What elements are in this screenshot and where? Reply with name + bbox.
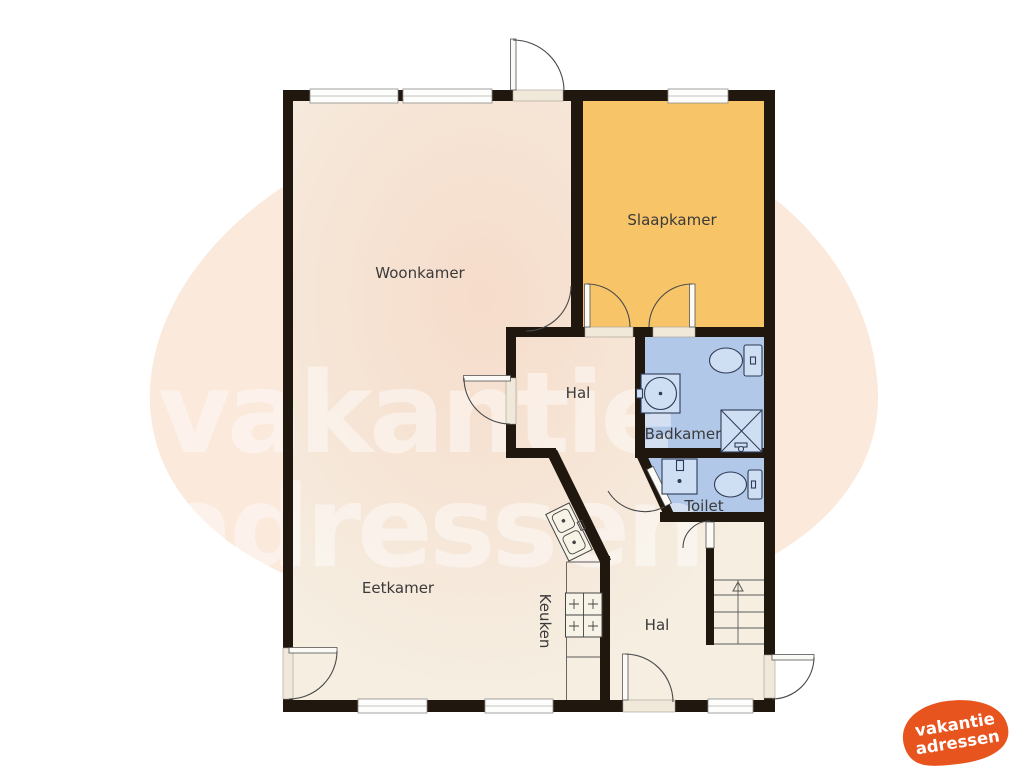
label-toilet: Toilet (683, 497, 723, 515)
threshold-slaapkamer-hal (585, 327, 633, 337)
label-badkamer: Badkamer (645, 425, 722, 443)
watermark: vakantie adressen (158, 349, 702, 593)
window (485, 699, 553, 713)
slaapkamer-badkamer-door-leaf (690, 284, 696, 327)
wall-hal-top (506, 327, 764, 337)
threshold-entrance-right (764, 655, 775, 698)
window (708, 699, 753, 713)
window (403, 89, 492, 103)
square-sink-icon (662, 459, 697, 494)
stair-closet-door-leaf (706, 522, 714, 548)
hal-door-leaf (464, 376, 511, 382)
label-woonkamer: Woonkamer (375, 264, 465, 282)
floorplan-canvas: vakantie adressen (0, 0, 1024, 768)
wall-woonkamer-slaapkamer (571, 101, 583, 337)
eetkamer-door-leaf (289, 648, 337, 654)
entrance-door-leaf (772, 655, 814, 661)
label-hal: Hal (566, 384, 591, 402)
shower-icon (721, 410, 762, 452)
wall-exterior-right (764, 90, 775, 712)
front-door-leaf (511, 39, 517, 90)
watermark-line1: vakantie (158, 349, 672, 479)
threshold-hal2-door (623, 700, 675, 712)
threshold-eetkamer-door (283, 648, 293, 699)
window (358, 699, 427, 713)
label-hal2: Hal (645, 616, 670, 634)
label-slaapkamer: Slaapkamer (627, 211, 717, 229)
hal2-door-leaf (623, 654, 629, 700)
label-eetkamer: Eetkamer (362, 579, 435, 597)
wall-exterior-left (283, 90, 293, 712)
floorplan-page: vakantie adressen (0, 0, 1024, 768)
toilet-icon (715, 470, 763, 499)
watermark-line2: adressen (158, 463, 702, 593)
threshold-hal-woonkamer (506, 378, 516, 424)
stove-icon (566, 593, 603, 637)
window (310, 89, 398, 103)
threshold-front-door-top (513, 90, 563, 101)
threshold-slaapkamer-badkamer (653, 327, 695, 337)
slaapkamer-hal-door-leaf (585, 284, 591, 327)
round-sink-icon (637, 374, 681, 413)
label-keuken: Keuken (536, 594, 554, 649)
window (668, 89, 728, 103)
